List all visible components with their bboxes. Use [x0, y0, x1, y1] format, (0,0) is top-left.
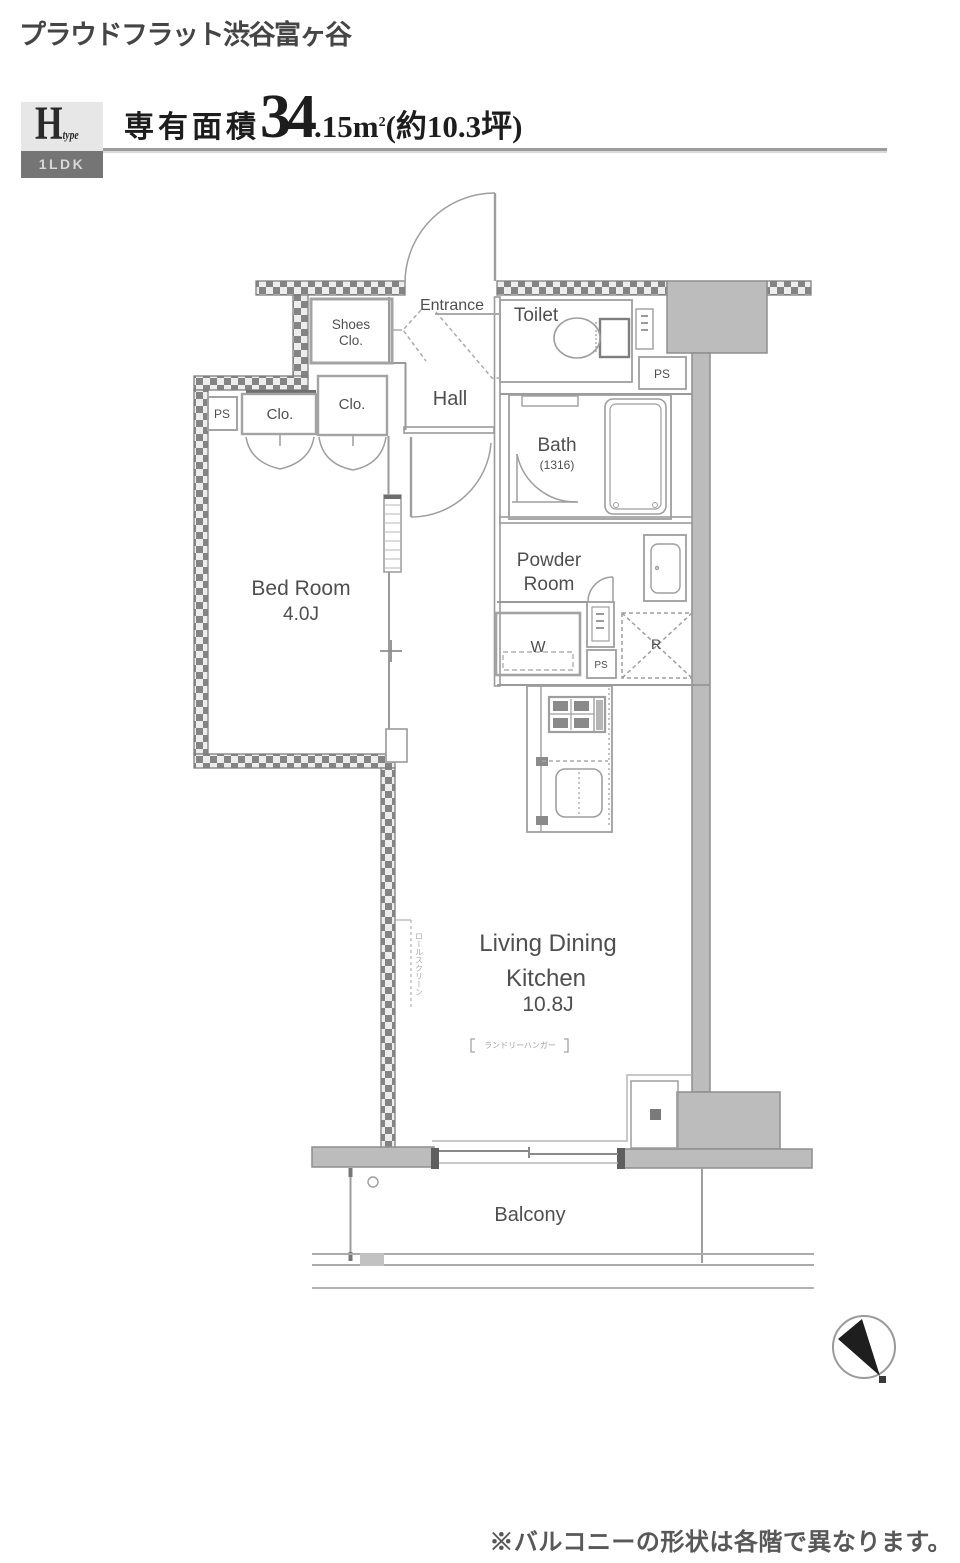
svg-text:Hall: Hall	[433, 388, 467, 410]
svg-text:Kitchen: Kitchen	[506, 965, 586, 992]
svg-text:Toilet: Toilet	[514, 305, 559, 326]
svg-text:Clo.: Clo.	[267, 406, 294, 423]
svg-text:Shoes: Shoes	[332, 317, 371, 332]
svg-text:W: W	[530, 639, 546, 656]
svg-text:Powder: Powder	[517, 550, 582, 571]
svg-text:Clo.: Clo.	[339, 333, 363, 348]
svg-text:10.8J: 10.8J	[522, 993, 573, 1016]
svg-text:PS: PS	[594, 660, 608, 671]
svg-text:Entrance: Entrance	[420, 297, 484, 314]
svg-text:Bed Room: Bed Room	[251, 577, 350, 600]
svg-text:PS: PS	[214, 407, 230, 421]
svg-text:Living Dining: Living Dining	[479, 930, 616, 957]
svg-text:PS: PS	[654, 367, 670, 381]
svg-text:Bath: Bath	[537, 435, 576, 456]
svg-text:4.0J: 4.0J	[283, 604, 319, 625]
svg-text:Clo.: Clo.	[339, 396, 366, 413]
svg-text:(1316): (1316)	[540, 458, 575, 472]
svg-text:Room: Room	[524, 574, 575, 595]
svg-text:ランドリーハンガー: ランドリーハンガー	[484, 1040, 556, 1050]
svg-text:Balcony: Balcony	[494, 1204, 565, 1226]
svg-text:ロールスクリーン: ロールスクリーン	[415, 932, 424, 996]
svg-text:R: R	[651, 636, 661, 652]
